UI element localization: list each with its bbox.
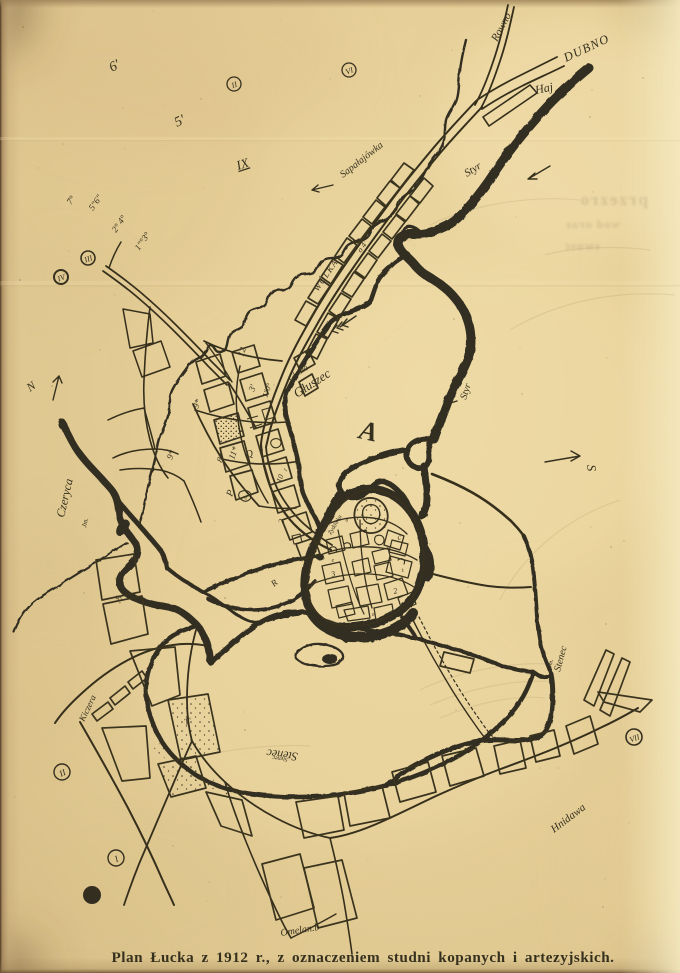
svg-text:Plan Łucka z 1912 r., z oznacz: Plan Łucka z 1912 r., z oznaczeniem stud… xyxy=(112,949,615,966)
svg-text:przezro: przezro xyxy=(579,190,648,209)
svg-text:wod oraz: wod oraz xyxy=(565,217,620,231)
